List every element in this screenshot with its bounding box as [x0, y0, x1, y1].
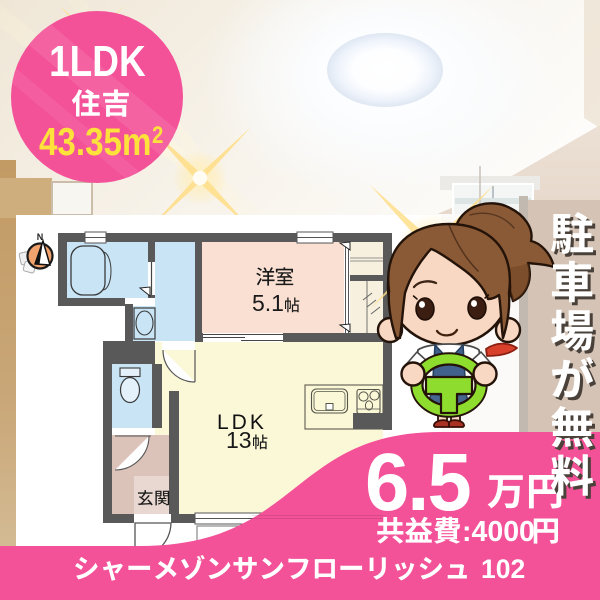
svg-text:102: 102	[481, 554, 525, 584]
svg-text::4000: :4000	[462, 516, 535, 548]
svg-text:1LDK: 1LDK	[49, 36, 146, 86]
svg-text:5.1: 5.1	[252, 290, 284, 316]
svg-text:N: N	[37, 232, 44, 242]
svg-text:13: 13	[226, 427, 252, 453]
svg-text:6.5: 6.5	[365, 437, 470, 528]
svg-text:2: 2	[152, 121, 163, 148]
svg-text:43.35m: 43.35m	[39, 119, 151, 163]
